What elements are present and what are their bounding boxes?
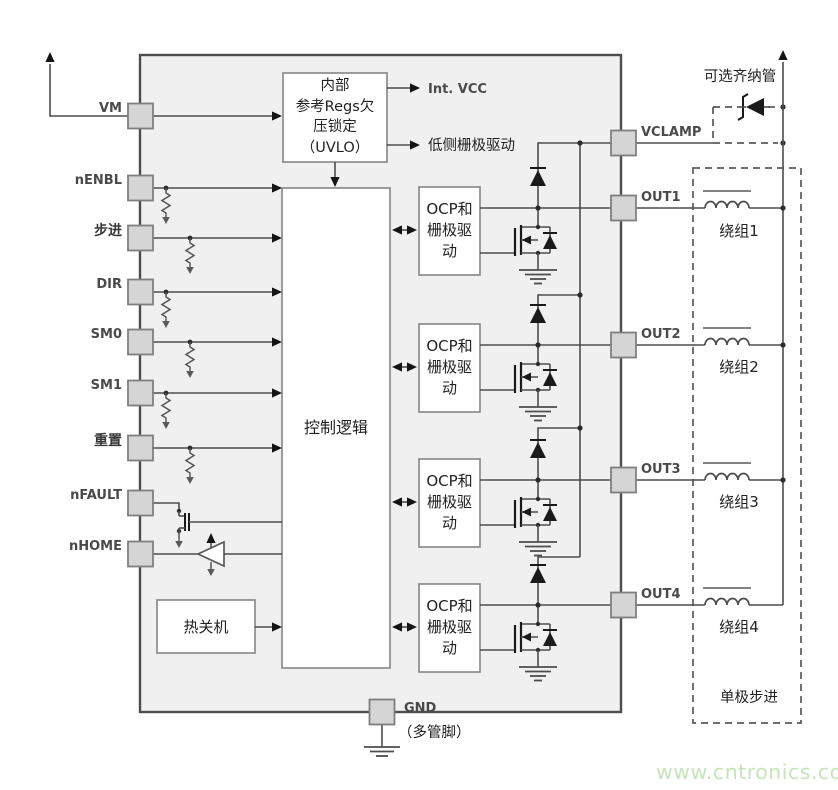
vclamp-pad <box>611 131 636 156</box>
out2-pad <box>611 333 636 358</box>
ocp4-line-3: 动 <box>442 639 457 657</box>
nenbl-pin-label: nENBL <box>75 173 122 188</box>
winding-3-coil-icon <box>703 463 751 480</box>
out1-pin-label: OUT1 <box>641 190 681 205</box>
supply-up-arrow-icon <box>778 50 787 60</box>
winding-4-coil-icon <box>703 588 751 605</box>
ocp3-line-2: 栅极驱 <box>427 493 472 511</box>
stepper-motor-box: 绕组1 绕组2 绕组3 绕组4 单极步进 <box>636 168 801 723</box>
vm-pin-label: VM <box>99 101 122 116</box>
gnd-pin-note: （多管脚） <box>398 724 471 741</box>
reset-pad <box>128 436 153 461</box>
low-side-gate-drive-label: 低侧栅极驱动 <box>428 137 515 154</box>
schematic-canvas: 内部 参考Regs欠 压锁定 （UVLO） Int. VCC 低侧栅极驱动 控制… <box>0 0 838 790</box>
ocp2-line-1: OCP和 <box>426 337 472 355</box>
reset-pin-label: 重置 <box>94 432 122 449</box>
gnd-pin-label: GND <box>404 701 437 716</box>
out4-pad <box>611 593 636 618</box>
dir-pad <box>128 280 153 305</box>
out3-pad <box>611 468 636 493</box>
ocp2-line-2: 栅极驱 <box>427 358 472 376</box>
out1-pad <box>611 196 636 221</box>
watermark: www.cntronics.com <box>656 760 838 784</box>
int-vcc-label: Int. VCC <box>428 82 487 97</box>
vclamp-pin-label: VCLAMP <box>641 125 701 140</box>
right-pin-pads: VCLAMP OUT1 OUT2 OUT3 OUT4 <box>611 125 701 618</box>
control-logic-block: 控制逻辑 <box>282 188 390 668</box>
control-logic-label: 控制逻辑 <box>304 418 368 437</box>
winding-2-label: 绕组2 <box>719 358 759 376</box>
ocp1-line-2: 栅极驱 <box>427 221 472 239</box>
ocp3-line-3: 动 <box>442 514 457 532</box>
uvlo-line-4: （UVLO） <box>301 139 370 156</box>
sm1-pin-label: SM1 <box>91 378 122 393</box>
vm-pad <box>128 104 153 129</box>
ocp1-line-1: OCP和 <box>426 200 472 218</box>
sm1-pad <box>128 381 153 406</box>
winding-1-coil-icon <box>703 191 751 208</box>
ocp2-line-3: 动 <box>442 379 457 397</box>
unipolar-stepper-label: 单极步进 <box>720 689 778 706</box>
nfault-pin-label: nFAULT <box>70 488 122 503</box>
winding-4-label: 绕组4 <box>719 618 759 636</box>
winding-3-label: 绕组3 <box>719 493 759 511</box>
uvlo-line-3: 压锁定 <box>313 118 357 135</box>
ocp3-line-1: OCP和 <box>426 472 472 490</box>
dir-pin-label: DIR <box>96 277 122 292</box>
out4-pin-label: OUT4 <box>641 587 681 602</box>
nhome-pin-label: nHOME <box>69 539 122 554</box>
uvlo-line-1: 内部 <box>321 77 350 94</box>
ocp4-line-1: OCP和 <box>426 597 472 615</box>
ocp4-line-2: 栅极驱 <box>427 618 472 636</box>
nfault-pad <box>128 491 153 516</box>
out3-pin-label: OUT3 <box>641 462 681 477</box>
sm0-pin-label: SM0 <box>91 327 122 342</box>
winding-2-coil-icon <box>703 328 751 345</box>
optional-zener-label: 可选齐纳管 <box>704 68 777 85</box>
block-diagram: 内部 参考Regs欠 压锁定 （UVLO） Int. VCC 低侧栅极驱动 控制… <box>0 0 838 790</box>
uvlo-line-2: 参考Regs欠 <box>296 98 375 115</box>
gnd-pad <box>370 700 395 725</box>
nhome-pad <box>128 542 153 567</box>
motor-supply-line <box>778 50 787 605</box>
nenbl-pad <box>128 176 153 201</box>
vm-up-arrow-icon <box>45 52 54 62</box>
sm0-pad <box>128 330 153 355</box>
out2-pin-label: OUT2 <box>641 327 681 342</box>
winding-1-label: 绕组1 <box>719 222 759 240</box>
step-pin-label: 步进 <box>94 222 122 239</box>
step-pad <box>128 226 153 251</box>
ocp1-line-3: 动 <box>442 242 457 260</box>
thermal-shutdown-label: 热关机 <box>183 618 228 636</box>
